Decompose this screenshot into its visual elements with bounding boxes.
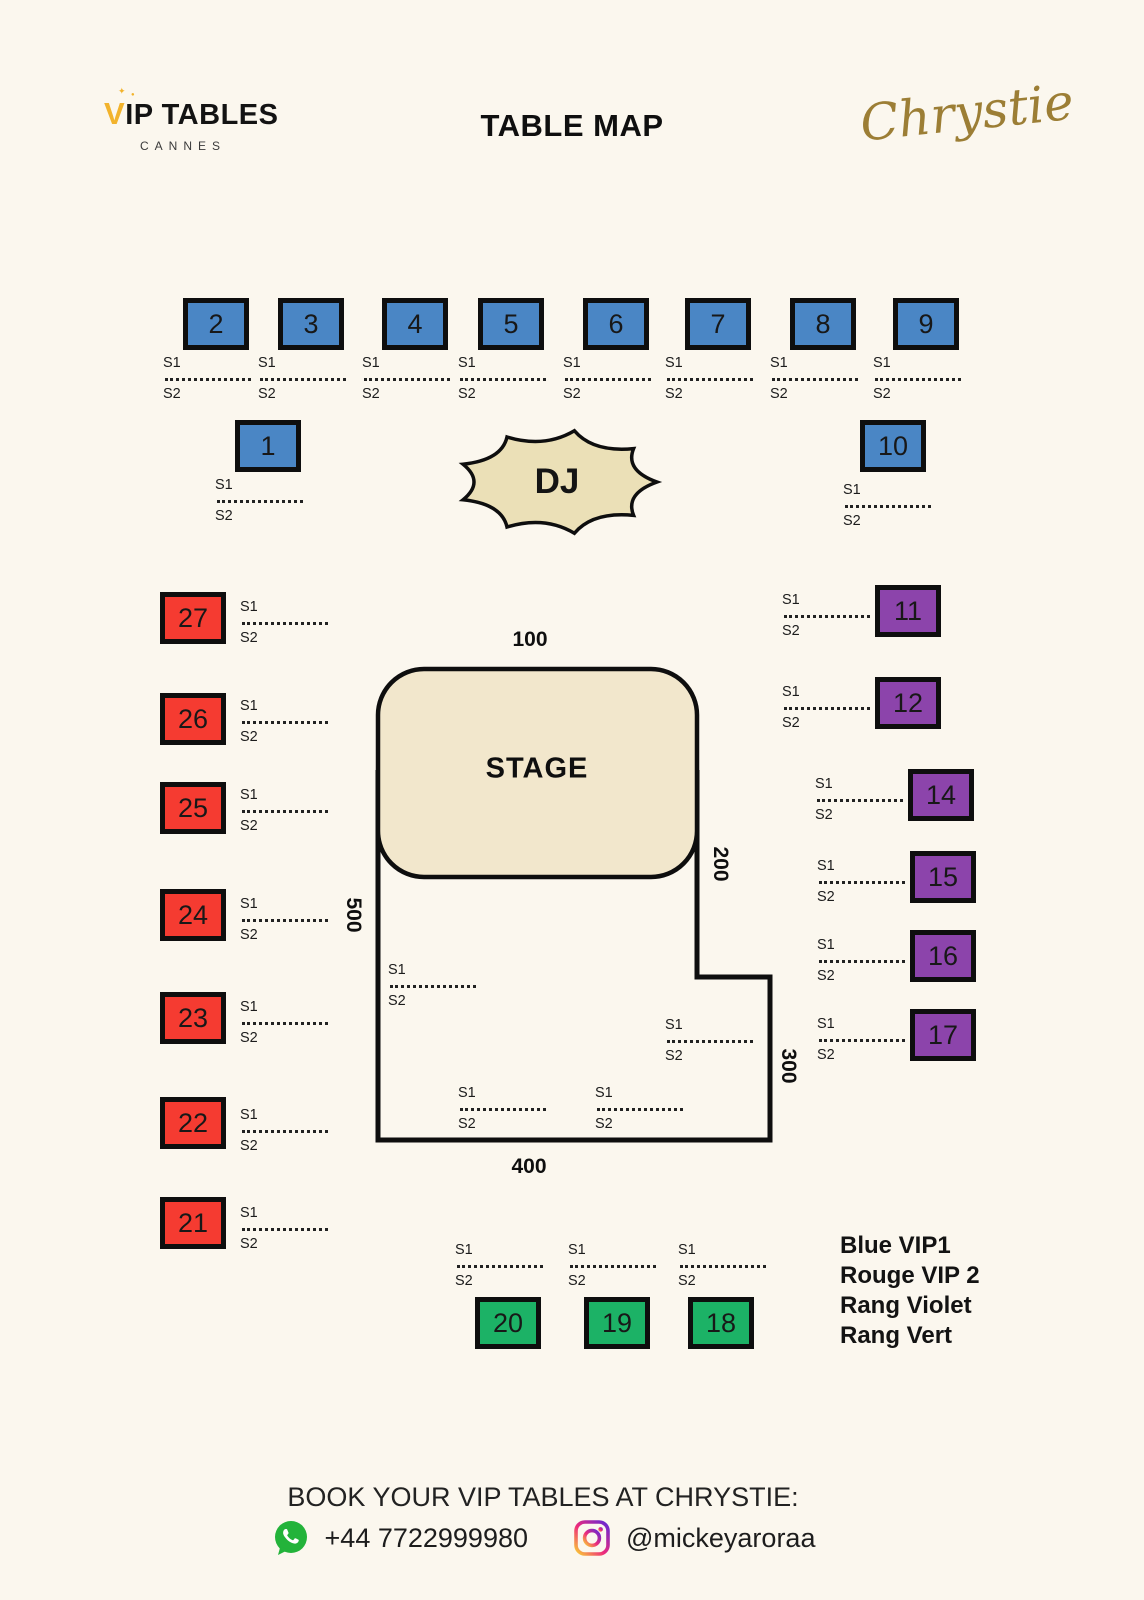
table-20[interactable]: 20 (475, 1297, 541, 1349)
seat-divider-line (242, 622, 328, 625)
seat-block: S1S2 (817, 938, 907, 984)
seat-divider-line (875, 378, 961, 381)
seat-s2-label: S2 (240, 928, 330, 943)
seat-block: S1S2 (240, 1000, 330, 1046)
seat-divider-line (165, 378, 251, 381)
table-15[interactable]: 15 (910, 851, 976, 903)
seat-s1-label: S1 (240, 897, 330, 912)
seat-s2-label: S2 (240, 819, 330, 834)
seat-s1-label: S1 (815, 777, 905, 792)
table-9[interactable]: 9 (893, 298, 959, 350)
seat-block: S1S2 (770, 356, 860, 402)
seat-s2-label: S2 (815, 808, 905, 823)
table-18[interactable]: 18 (688, 1297, 754, 1349)
seat-divider-line (460, 1108, 546, 1111)
table-10[interactable]: 10 (860, 420, 926, 472)
seat-s1-label: S1 (782, 593, 872, 608)
seat-block: S1S2 (873, 356, 963, 402)
stage-label: STAGE (486, 753, 589, 786)
legend: Blue VIP1 Rouge VIP 2 Rang Violet Rang V… (840, 1231, 980, 1351)
table-12[interactable]: 12 (875, 677, 941, 729)
dance-floor-outline (378, 770, 770, 1140)
seat-block: S1S2 (240, 788, 330, 834)
seat-s2-label: S2 (163, 387, 253, 402)
seat-block: S1S2 (458, 356, 548, 402)
seat-s2-label: S2 (665, 387, 755, 402)
seat-s2-label: S2 (258, 387, 348, 402)
seat-s1-label: S1 (215, 478, 305, 493)
seat-divider-line (565, 378, 651, 381)
seat-s2-label: S2 (388, 994, 478, 1009)
seat-block: S1S2 (595, 1086, 685, 1132)
table-23[interactable]: 23 (160, 992, 226, 1044)
contact-row: +44 7722999980 @mickeyaroraa (0, 1518, 1086, 1558)
seat-divider-line (217, 500, 303, 503)
seat-s1-label: S1 (817, 1017, 907, 1032)
seat-block: S1S2 (665, 356, 755, 402)
seat-s1-label: S1 (240, 788, 330, 803)
seat-s1-label: S1 (843, 483, 933, 498)
seat-block: S1S2 (817, 859, 907, 905)
table-5[interactable]: 5 (478, 298, 544, 350)
seat-s2-label: S2 (843, 514, 933, 529)
zone-label-500: 500 (341, 897, 365, 932)
seat-block: S1S2 (258, 356, 348, 402)
seat-s1-label: S1 (258, 356, 348, 371)
seat-block: S1S2 (782, 593, 872, 639)
seat-s1-label: S1 (665, 356, 755, 371)
seat-divider-line (784, 615, 870, 618)
seat-s1-label: S1 (770, 356, 860, 371)
table-11[interactable]: 11 (875, 585, 941, 637)
seat-divider-line (260, 378, 346, 381)
table-3[interactable]: 3 (278, 298, 344, 350)
seat-divider-line (457, 1265, 543, 1268)
seat-divider-line (390, 985, 476, 988)
seat-divider-line (460, 378, 546, 381)
seat-s1-label: S1 (595, 1086, 685, 1101)
seat-block: S1S2 (563, 356, 653, 402)
seat-block: S1S2 (568, 1243, 658, 1289)
seat-block: S1S2 (458, 1086, 548, 1132)
seat-block: S1S2 (388, 963, 478, 1009)
seat-block: S1S2 (678, 1243, 768, 1289)
seat-divider-line (242, 721, 328, 724)
seat-divider-line (784, 707, 870, 710)
table-6[interactable]: 6 (583, 298, 649, 350)
seat-divider-line (242, 1228, 328, 1231)
whatsapp-icon[interactable] (271, 1518, 311, 1558)
seat-s2-label: S2 (240, 1237, 330, 1252)
table-7[interactable]: 7 (685, 298, 751, 350)
table-25[interactable]: 25 (160, 782, 226, 834)
table-19[interactable]: 19 (584, 1297, 650, 1349)
seat-s2-label: S2 (770, 387, 860, 402)
seat-s1-label: S1 (240, 1108, 330, 1123)
seat-s2-label: S2 (873, 387, 963, 402)
seat-block: S1S2 (240, 1206, 330, 1252)
table-14[interactable]: 14 (908, 769, 974, 821)
seat-s1-label: S1 (458, 356, 548, 371)
table-17[interactable]: 17 (910, 1009, 976, 1061)
seat-block: S1S2 (240, 1108, 330, 1154)
booking-call-to-action: BOOK YOUR VIP TABLES AT CHRYSTIE: (0, 1482, 1086, 1513)
table-4[interactable]: 4 (382, 298, 448, 350)
legend-item-blue: Blue VIP1 (840, 1231, 980, 1261)
seat-block: S1S2 (817, 1017, 907, 1063)
seat-s2-label: S2 (455, 1274, 545, 1289)
seat-s2-label: S2 (362, 387, 452, 402)
seat-s1-label: S1 (240, 1000, 330, 1015)
seat-divider-line (242, 1130, 328, 1133)
zone-label-100: 100 (512, 628, 547, 652)
seat-s1-label: S1 (163, 356, 253, 371)
seat-s2-label: S2 (458, 1117, 548, 1132)
legend-item-green: Rang Vert (840, 1321, 980, 1351)
seat-s1-label: S1 (388, 963, 478, 978)
legend-item-red: Rouge VIP 2 (840, 1261, 980, 1291)
table-24[interactable]: 24 (160, 889, 226, 941)
seat-block: S1S2 (240, 897, 330, 943)
table-2[interactable]: 2 (183, 298, 249, 350)
seat-block: S1S2 (782, 685, 872, 731)
whatsapp-phone-number[interactable]: +44 7722999980 (325, 1523, 528, 1554)
seat-divider-line (667, 378, 753, 381)
seat-s2-label: S2 (817, 969, 907, 984)
seat-s2-label: S2 (240, 631, 330, 646)
seat-s2-label: S2 (568, 1274, 658, 1289)
seat-divider-line (819, 881, 905, 884)
seat-s1-label: S1 (817, 938, 907, 953)
zone-label-300: 300 (776, 1048, 800, 1083)
seat-s2-label: S2 (458, 387, 548, 402)
seat-block: S1S2 (240, 600, 330, 646)
table-26[interactable]: 26 (160, 693, 226, 745)
seat-s1-label: S1 (362, 356, 452, 371)
seat-divider-line (680, 1265, 766, 1268)
seat-divider-line (242, 810, 328, 813)
seat-s1-label: S1 (240, 600, 330, 615)
seat-s2-label: S2 (665, 1049, 755, 1064)
seat-s1-label: S1 (240, 699, 330, 714)
seat-s2-label: S2 (817, 890, 907, 905)
seat-block: S1S2 (815, 777, 905, 823)
seat-s1-label: S1 (568, 1243, 658, 1258)
seat-s2-label: S2 (240, 1139, 330, 1154)
seat-s2-label: S2 (782, 624, 872, 639)
seat-divider-line (819, 960, 905, 963)
seat-s1-label: S1 (455, 1243, 545, 1258)
seat-divider-line (845, 505, 931, 508)
seat-s1-label: S1 (240, 1206, 330, 1221)
legend-item-purple: Rang Violet (840, 1291, 980, 1321)
seat-block: S1S2 (362, 356, 452, 402)
table-16[interactable]: 16 (910, 930, 976, 982)
seat-block: S1S2 (240, 699, 330, 745)
table-22[interactable]: 22 (160, 1097, 226, 1149)
seat-divider-line (667, 1040, 753, 1043)
seat-s1-label: S1 (782, 685, 872, 700)
zone-label-400: 400 (511, 1155, 546, 1179)
seat-s2-label: S2 (240, 1031, 330, 1046)
seat-block: S1S2 (843, 483, 933, 529)
seat-divider-line (772, 378, 858, 381)
seat-divider-line (242, 919, 328, 922)
seat-block: S1S2 (455, 1243, 545, 1289)
seat-s1-label: S1 (563, 356, 653, 371)
table-27[interactable]: 27 (160, 592, 226, 644)
table-map-flyer: ✦ ● VIP TABLES CANNES TABLE MAP Chrystie… (0, 0, 1144, 1600)
seat-s1-label: S1 (665, 1018, 755, 1033)
seat-s1-label: S1 (873, 356, 963, 371)
seat-block: S1S2 (163, 356, 253, 402)
zone-label-200: 200 (708, 846, 732, 881)
seat-s2-label: S2 (240, 730, 330, 745)
table-21[interactable]: 21 (160, 1197, 226, 1249)
seat-s2-label: S2 (595, 1117, 685, 1132)
seat-s2-label: S2 (563, 387, 653, 402)
seat-s1-label: S1 (458, 1086, 548, 1101)
seat-block: S1S2 (215, 478, 305, 524)
seat-s2-label: S2 (817, 1048, 907, 1063)
seat-divider-line (597, 1108, 683, 1111)
instagram-icon[interactable] (572, 1518, 612, 1558)
seat-s2-label: S2 (782, 716, 872, 731)
seat-divider-line (819, 1039, 905, 1042)
dj-booth-label: DJ (535, 462, 580, 502)
table-8[interactable]: 8 (790, 298, 856, 350)
instagram-handle[interactable]: @mickeyaroraa (626, 1523, 815, 1554)
seat-block: S1S2 (665, 1018, 755, 1064)
seat-divider-line (242, 1022, 328, 1025)
seat-s1-label: S1 (678, 1243, 768, 1258)
table-1[interactable]: 1 (235, 420, 301, 472)
seat-s1-label: S1 (817, 859, 907, 874)
seat-divider-line (570, 1265, 656, 1268)
seat-divider-line (364, 378, 450, 381)
seat-s2-label: S2 (215, 509, 305, 524)
seat-s2-label: S2 (678, 1274, 768, 1289)
seat-divider-line (817, 799, 903, 802)
